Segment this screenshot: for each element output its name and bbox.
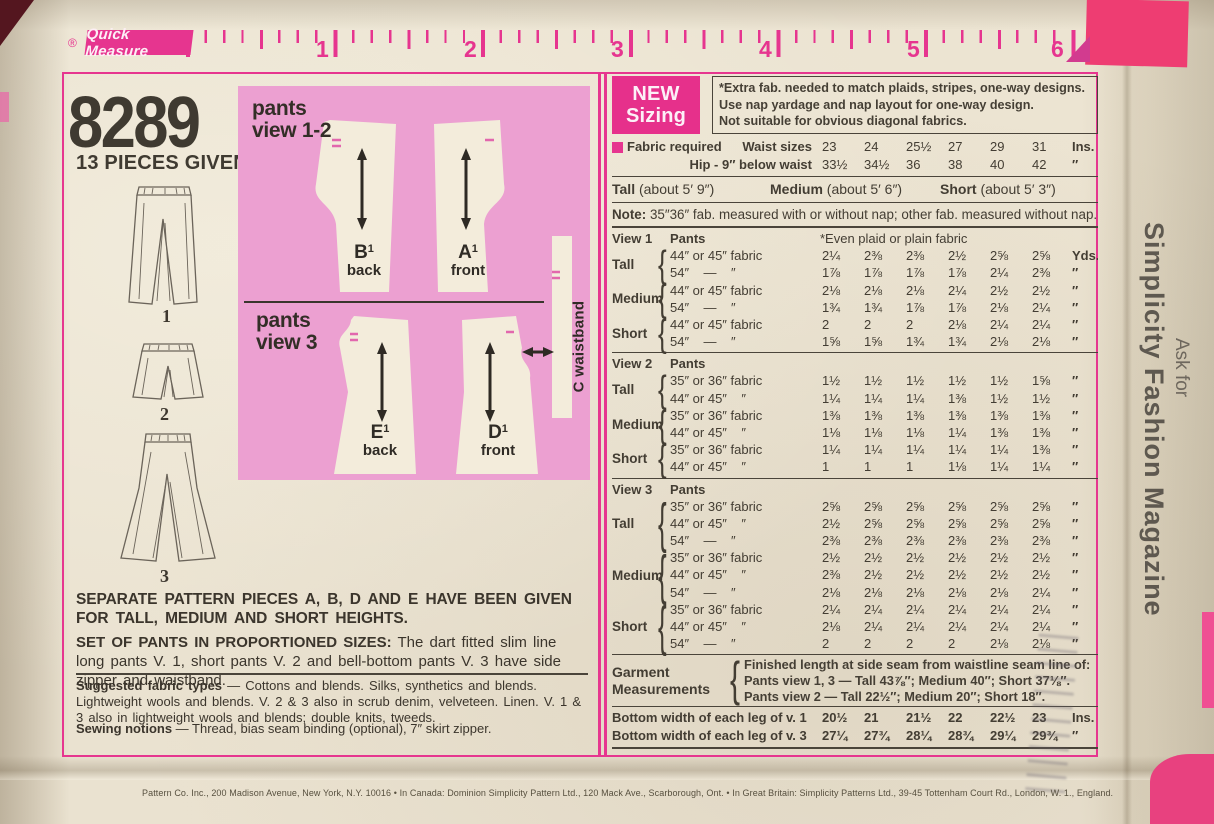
nap-note-row: Note: 35″36″ fab. measured with or witho… (612, 205, 1098, 224)
unit-cell: ″ (1072, 407, 1098, 424)
yardage-cell: 2½ (862, 566, 904, 583)
yardage-row: 44″ or 45″ fabric2¼2⅜2⅜2½2⅝2⅝Yds. (670, 247, 1098, 264)
yardage-cell: 2½ (1030, 549, 1072, 566)
yardage-cell: 1½ (946, 372, 988, 389)
yardage-cell: 2⅝ (862, 498, 904, 515)
notions-lead: Sewing notions (76, 721, 172, 736)
yardage-cell: 1½ (988, 390, 1030, 407)
yardage-cell: 1¼ (820, 441, 862, 458)
yardage-cell: 1¼ (988, 458, 1030, 475)
group-height-label: Medium (612, 417, 658, 432)
yardage-cell: 2⅛ (946, 584, 988, 601)
yardage-cell: 2¼ (904, 618, 946, 635)
yardage-cell: 2⅛ (820, 282, 862, 299)
new-sizing-line1: NEW (632, 83, 679, 105)
yardage-group: Tall 35″ or 36″ fabric1½1½1½1½1½1⅝″44″ o… (612, 372, 1098, 406)
yardage-cell: 1¼ (862, 441, 904, 458)
yardage-cell: 2⅝ (904, 515, 946, 532)
unit-cell: ″ (1072, 566, 1098, 583)
yardage-cell: 2⅝ (988, 498, 1030, 515)
view2-number: 2 (160, 404, 169, 425)
pants-view1-illustration (113, 183, 218, 308)
yardage-cell: 1¾ (862, 299, 904, 316)
yardage-cell: 1¼ (862, 390, 904, 407)
yardage-cell: 1⅛ (862, 424, 904, 441)
garment-measurements-label2: Measurements (612, 681, 730, 698)
group-height-label: Short (612, 326, 658, 341)
bottom-width-row-v3: Bottom width of each leg of v. 3 27¼ 27¾… (612, 727, 1098, 745)
yardage-cell: 2 (904, 635, 946, 652)
waist-size-value: 23 (820, 138, 862, 156)
unit-cell: ″ (1072, 532, 1098, 549)
hip-sizes-row: Hip - 9″ below waist 33½ 34½ 36 38 40 42… (612, 156, 1098, 174)
waist-size-value: 25½ (904, 138, 946, 156)
yardage-cell: 1⅜ (946, 390, 988, 407)
yardage-cell: 2⅛ (1030, 333, 1072, 350)
yardage-cell: 1⅛ (820, 424, 862, 441)
yardage-cell: 2½ (862, 549, 904, 566)
yardage-cell: 1⅞ (904, 299, 946, 316)
fabric-width-cell: 54″ — ″ (670, 333, 820, 350)
unit-cell: ″ (1072, 282, 1098, 299)
pants-view3-illustration (112, 430, 224, 565)
yardage-cell: 1¾ (904, 333, 946, 350)
unit-cell: ″ (1072, 584, 1098, 601)
yardage-cell: 1¾ (820, 299, 862, 316)
corner-tear (0, 0, 34, 46)
brace-icon (658, 560, 670, 591)
view-extra (820, 355, 1098, 372)
unit-cell: ″ (1072, 441, 1098, 458)
yardage-cell: 1⅜ (862, 407, 904, 424)
yardage-cell: 2½ (988, 282, 1030, 299)
height-definition: Tall (about 5′ 9″) (612, 179, 770, 200)
yardage-cell: 2½ (904, 549, 946, 566)
yardage-row: 44″ or 45″ fabric2⅛2⅛2⅛2¼2½2½″ (670, 282, 1098, 299)
yardage-cell: 1½ (904, 372, 946, 389)
yardage-cell: 1⅛ (946, 458, 988, 475)
yardage-cell: 1 (904, 458, 946, 475)
fabrics-lead: Suggested fabric types (76, 678, 222, 693)
pieces-given-label: 13 PIECES GIVEN (76, 152, 248, 175)
pattern-pieces-shapes (238, 86, 590, 480)
unit-cell: ″ (1072, 299, 1098, 316)
fabric-width-cell: 35″ or 36″ fabric (670, 372, 820, 389)
waist-sizes-label: Waist sizes (742, 138, 812, 156)
section-rule (612, 654, 1098, 655)
ruler-number: 3 (611, 36, 624, 63)
height-definition: Short (about 5′ 3″) (940, 179, 1098, 200)
separate-pieces-note: SEPARATE PATTERN PIECES A, B, D AND E HA… (76, 590, 588, 629)
hip-size-value: 38 (946, 156, 988, 174)
notions-rest: — Thread, bias seam binding (optional), … (172, 721, 491, 736)
yardage-cell: 2½ (1030, 566, 1072, 583)
yardage-cell: 1⅜ (904, 407, 946, 424)
yardage-row: 35″ or 36″ fabric1½1½1½1½1½1⅝″ (670, 372, 1098, 389)
yardage-cell: 1⅞ (904, 264, 946, 281)
yardage-cell: 2¼ (946, 282, 988, 299)
yardage-group: Short 35″ or 36″ fabric2¼2¼2¼2¼2¼2¼″44″ … (612, 601, 1098, 653)
right-pink-strip (1202, 612, 1214, 708)
yardage-cell: 2½ (988, 566, 1030, 583)
yardage-cell: 1⅝ (862, 333, 904, 350)
yardage-cell: 2⅜ (946, 532, 988, 549)
yardage-cell: 2⅛ (862, 584, 904, 601)
yardage-cell: 2⅜ (862, 247, 904, 264)
section-rule (612, 352, 1098, 353)
side-magazine-text: Simplicity Fashion Magazine (1138, 222, 1169, 782)
view-garment: Pants (670, 481, 820, 498)
fabric-width-cell: 44″ or 45″ ″ (670, 458, 820, 475)
view2-header: View 2 Pants (612, 355, 1098, 372)
yardage-cell: 2⅝ (820, 498, 862, 515)
view-extra: *Even plaid or plain fabric (820, 230, 1098, 247)
bottom-width-label: Bottom width of each leg of v. 1 (612, 709, 807, 727)
yardage-cell: 2⅝ (1030, 498, 1072, 515)
fabric-width-cell: 54″ — ″ (670, 532, 820, 549)
view-extra (820, 481, 1098, 498)
fabric-width-cell: 35″ or 36″ fabric (670, 407, 820, 424)
side-ask-for-text: Ask for (1170, 338, 1192, 568)
height-name: Medium (770, 181, 823, 197)
yardage-row: 35″ or 36″ fabric2½2½2½2½2½2½″ (670, 549, 1098, 566)
bottom-width-value: 28¼ (904, 727, 946, 745)
yardage-cell: 2⅜ (820, 532, 862, 549)
section-rule (612, 478, 1098, 479)
yardage-group: Medium 35″ or 36″ fabric1⅜1⅜1⅜1⅜1⅜1⅜″44″… (612, 407, 1098, 441)
piece-label-e: E1 back (344, 422, 416, 459)
group-height-label: Tall (612, 516, 658, 531)
yardage-row: 44″ or 45″ ″1111⅛1¼1¼″ (670, 458, 1098, 475)
view1-header: View 1 Pants *Even plaid or plain fabric (612, 230, 1098, 247)
text-divider (76, 673, 588, 675)
quick-measure-label: Quick Measure (85, 26, 193, 60)
new-sizing-line2: Sizing (626, 105, 686, 127)
registered-trademark-icon: ® (68, 36, 77, 50)
yardage-cell: 2½ (946, 566, 988, 583)
bottom-width-value: 22½ (988, 709, 1030, 727)
yardage-group: Short 35″ or 36″ fabric1¼1¼1¼1¼1¼1⅜″44″ … (612, 441, 1098, 475)
yardage-cell: 1⅜ (988, 407, 1030, 424)
bottom-width-value: 22 (946, 709, 988, 727)
flap-pink-block (1085, 0, 1189, 67)
view3-diagram-label: pants view 3 (256, 310, 317, 353)
group-height-label: Tall (612, 257, 658, 272)
yardage-cell: 2 (862, 635, 904, 652)
yardage-cell: 2¼ (1030, 601, 1072, 618)
ruler-number: 2 (464, 36, 477, 63)
view3-number: 3 (160, 566, 169, 587)
group-height-label: Medium (612, 568, 658, 583)
yardage-panel: NEW Sizing *Extra fab. needed to match p… (608, 74, 1098, 755)
extra-fabric-note-line: Not suitable for obvious diagonal fabric… (719, 113, 1091, 130)
yardage-cell: 2⅛ (988, 299, 1030, 316)
yardage-row: 54″ — ″1⅞1⅞1⅞1⅞2¼2⅜″ (670, 264, 1098, 281)
bottom-width-value: 21 (862, 709, 904, 727)
fabric-width-cell: 44″ or 45″ ″ (670, 618, 820, 635)
yardage-cell: 2½ (904, 566, 946, 583)
yardage-cell: 2½ (946, 247, 988, 264)
height-name: Tall (612, 181, 635, 197)
fabric-width-cell: 35″ or 36″ fabric (670, 601, 820, 618)
piece-sup: 1 (383, 423, 389, 435)
yardage-cell: 1⅜ (1030, 424, 1072, 441)
yardage-cell: 2¼ (1030, 316, 1072, 333)
yardage-cell: 2⅛ (820, 618, 862, 635)
nap-note-lead: Note: (612, 207, 646, 222)
waist-size-value: 29 (988, 138, 1030, 156)
yardage-cell: 2⅛ (988, 635, 1030, 652)
hip-size-value: 34½ (862, 156, 904, 174)
yardage-cell: 2⅛ (988, 333, 1030, 350)
ruler-number: 5 (907, 36, 920, 63)
height-desc: (about 5′ 6″) (823, 181, 902, 197)
ruler-number: 1 (316, 36, 329, 63)
yardage-cell: 2⅝ (1030, 515, 1072, 532)
garment-measurements-label1: Garment (612, 664, 730, 681)
group-height-label: Medium (612, 291, 658, 306)
yardage-cell: 1 (820, 458, 862, 475)
sewing-notions-note: Sewing notions — Thread, bias seam bindi… (76, 721, 588, 736)
yardage-cell: 2⅝ (862, 515, 904, 532)
section-rule (612, 202, 1098, 203)
unit-cell: ″ (1072, 390, 1098, 407)
section-rule-thick (612, 226, 1098, 228)
yardage-cell: 2⅝ (1030, 247, 1072, 264)
yardage-row: 54″ — ″1¾1¾1⅞1⅞2⅛2¼″ (670, 299, 1098, 316)
yardage-cell: 1⅝ (820, 333, 862, 350)
waist-size-value: 27 (946, 138, 988, 156)
hip-size-value: 42 (1030, 156, 1072, 174)
piece-part: front (432, 262, 504, 279)
view1-number: 1 (162, 306, 171, 327)
piece-sup: 1 (472, 243, 478, 255)
yardage-cell: 2⅜ (862, 532, 904, 549)
group-height-label: Short (612, 451, 658, 466)
piece-letter: B (354, 242, 368, 263)
extra-fabric-note: *Extra fab. needed to match plaids, stri… (712, 76, 1098, 134)
pants-view2-illustration (126, 340, 210, 404)
yardage-cell: 1¼ (820, 390, 862, 407)
yardage-cell: 1⅜ (1030, 441, 1072, 458)
piece-label-b: B1 back (328, 242, 400, 279)
yardage-row: 54″ — ″2⅜2⅜2⅜2⅜2⅜2⅜″ (670, 532, 1098, 549)
footer-copyright: Pattern Co. Inc., 200 Madison Avenue, Ne… (142, 788, 1122, 798)
yardage-cell: 2¼ (946, 601, 988, 618)
yardage-cell: 2⅝ (946, 498, 988, 515)
yardage-cell: 2⅜ (904, 247, 946, 264)
height-desc: (about 5′ 9″) (635, 181, 714, 197)
yardage-cell: 1¼ (904, 390, 946, 407)
piece-letter: D (488, 422, 502, 443)
heights-row: Tall (about 5′ 9″)Medium (about 5′ 6″)Sh… (612, 179, 1098, 200)
yardage-row: 44″ or 45″ fabric2222⅛2¼2¼″ (670, 316, 1098, 333)
yardage-cell: 2⅝ (904, 498, 946, 515)
yardage-group: Tall 35″ or 36″ fabric2⅝2⅝2⅝2⅝2⅝2⅝″44″ o… (612, 498, 1098, 550)
yardage-cell: 2½ (1030, 282, 1072, 299)
extra-fabric-note-line: Use nap yardage and nap layout for one-w… (719, 97, 1091, 114)
waist-size-value: 31 (1030, 138, 1072, 156)
unit-cell: ″ (1072, 316, 1098, 333)
paper-crease-right (1122, 0, 1132, 824)
yardage-cell: 1½ (1030, 390, 1072, 407)
waist-sizes-row: Fabric required Waist sizes 23 24 25½ 27… (612, 138, 1098, 156)
yardage-cell: 1⅞ (820, 264, 862, 281)
paper-fold-left (0, 0, 70, 824)
fabric-width-cell: 44″ or 45″ fabric (670, 247, 820, 264)
yardage-row: 44″ or 45″ ″1¼1¼1¼1⅜1½1½″ (670, 390, 1098, 407)
yardage-cell: 1 (862, 458, 904, 475)
pattern-pieces-diagram: pants view 1-2 pants view 3 B1 back A1 f… (238, 86, 590, 480)
yardage-row: 44″ or 45″ ″1⅛1⅛1⅛1¼1⅜1⅜″ (670, 424, 1098, 441)
fabric-width-cell: 35″ or 36″ fabric (670, 498, 820, 515)
yardage-row: 35″ or 36″ fabric1⅜1⅜1⅜1⅜1⅜1⅜″ (670, 407, 1098, 424)
fabric-width-cell: 44″ or 45″ fabric (670, 316, 820, 333)
fabric-width-cell: 35″ or 36″ fabric (670, 549, 820, 566)
waistband-label: C waistband (571, 282, 588, 412)
yardage-cell: 2¼ (988, 601, 1030, 618)
yardage-cell: 2⅛ (946, 316, 988, 333)
yardage-cell: 2⅜ (988, 532, 1030, 549)
hip-size-value: 33½ (820, 156, 862, 174)
unit-cell: ″ (1072, 601, 1098, 618)
yardage-cell: 1⅞ (946, 299, 988, 316)
piece-part: front (462, 442, 534, 459)
fabric-required-label: Fabric required (627, 138, 722, 156)
yardage-cell: 2¼ (988, 316, 1030, 333)
piece-label-d: D1 front (462, 422, 534, 459)
fabric-width-cell: 44″ or 45″ ″ (670, 390, 820, 407)
view3-header: View 3 Pants (612, 481, 1098, 498)
panel-divider (598, 72, 601, 757)
fabric-width-cell: 44″ or 45″ ″ (670, 424, 820, 441)
section-rule (612, 176, 1098, 177)
yardage-group: Medium 35″ or 36″ fabric2½2½2½2½2½2½″44″… (612, 549, 1098, 601)
group-height-label: Short (612, 619, 658, 634)
bottom-width-label: Bottom width of each leg of v. 3 (612, 727, 807, 745)
fabric-width-cell: 35″ or 36″ fabric (670, 441, 820, 458)
piece-letter: E (371, 422, 384, 443)
pink-square-icon (612, 142, 623, 153)
bottom-width-value: 20½ (820, 709, 862, 727)
yardage-cell: 1½ (820, 372, 862, 389)
yardage-row: 44″ or 45″ ″2⅛2¼2¼2¼2¼2¼″ (670, 618, 1098, 635)
yardage-cell: 2⅛ (988, 584, 1030, 601)
yardage-cell: 2⅜ (1030, 264, 1072, 281)
hip-size-value: 36 (904, 156, 946, 174)
section-rule (612, 706, 1098, 707)
view-garment: Pants (670, 355, 820, 372)
garment-measurements: Garment Measurements Finished length at … (612, 657, 1098, 704)
pattern-envelope-back: ® Quick Measure 123456 8289 13 PIECES GI… (0, 0, 1214, 824)
yardage-row: 35″ or 36″ fabric1¼1¼1¼1¼1¼1⅜″ (670, 441, 1098, 458)
yardage-cell: 1¼ (904, 441, 946, 458)
yardage-cell: 2⅝ (988, 247, 1030, 264)
piece-sup: 1 (502, 423, 508, 435)
brace-icon (658, 409, 670, 440)
yardage-group: Short 44″ or 45″ fabric2222⅛2¼2¼″54″ — ″… (612, 316, 1098, 350)
yardage-cell: 1½ (988, 372, 1030, 389)
edge-pink-sliver (0, 92, 9, 122)
brace-icon (658, 508, 670, 539)
yardage-cell: 2¼ (862, 601, 904, 618)
piece-part: back (328, 262, 400, 279)
yardage-cell: 1¾ (946, 333, 988, 350)
yardage-cell: 2¼ (820, 601, 862, 618)
view-garment: Pants (670, 230, 820, 247)
yardage-cell: 2⅛ (820, 584, 862, 601)
yardage-cell: 2½ (946, 549, 988, 566)
yardage-cell: 2¼ (1030, 299, 1072, 316)
quick-measure-badge: Quick Measure (84, 30, 193, 55)
brace-icon (658, 374, 670, 405)
yardage-cell: 2⅝ (946, 515, 988, 532)
yardage-cell: 2⅝ (988, 515, 1030, 532)
brace-icon (658, 283, 670, 314)
yardage-cell: 1¼ (1030, 458, 1072, 475)
bottom-width-value: 28¾ (946, 727, 988, 745)
yardage-cell: 1⅜ (946, 407, 988, 424)
brace-icon (658, 318, 670, 349)
yardage-cell: 2¼ (1030, 584, 1072, 601)
unit-cell: ″ (1072, 424, 1098, 441)
yardage-cell: 2¼ (946, 618, 988, 635)
fabric-width-cell: 44″ or 45″ ″ (670, 566, 820, 583)
panel-divider (604, 72, 607, 757)
bottom-width-unit: ″ (1072, 727, 1098, 745)
bottom-width-value: 27¼ (820, 727, 862, 745)
bottom-width-row-v1: Bottom width of each leg of v. 1 20½ 21 … (612, 709, 1098, 727)
yardage-cell: 2¼ (988, 264, 1030, 281)
yardage-cell: 1⅜ (1030, 407, 1072, 424)
yardage-cell: 2 (820, 635, 862, 652)
yardage-cell: 2 (904, 316, 946, 333)
unit-cell: ″ (1072, 333, 1098, 350)
yardage-cell: 1½ (862, 372, 904, 389)
yardage-cell: 1⅝ (1030, 372, 1072, 389)
yardage-cell: 2⅛ (862, 282, 904, 299)
yardage-row: 35″ or 36″ fabric2⅝2⅝2⅝2⅝2⅝2⅝″ (670, 498, 1098, 515)
yardage-row: 54″ — ″22222⅛2⅛″ (670, 635, 1098, 652)
hip-unit: ″ (1072, 156, 1098, 174)
fabric-width-cell: 44″ or 45″ ″ (670, 515, 820, 532)
extra-fabric-note-line: *Extra fab. needed to match plaids, stri… (719, 80, 1091, 97)
fabric-width-cell: 54″ — ″ (670, 264, 820, 281)
yardage-row: 44″ or 45″ ″2⅜2½2½2½2½2½″ (670, 566, 1098, 583)
yardage-cell: 2¼ (862, 618, 904, 635)
yardage-cell: 1⅛ (904, 424, 946, 441)
view12-diagram-label: pants view 1-2 (252, 98, 331, 141)
yardage-cell: 2½ (820, 515, 862, 532)
nap-note-rest: 35″36″ fab. measured with or without nap… (646, 207, 1097, 222)
yardage-cell: 1¼ (988, 441, 1030, 458)
set-note-lead: SET OF PANTS IN PROPORTIONED SIZES: (76, 634, 392, 651)
fabric-width-cell: 54″ — ″ (670, 299, 820, 316)
piece-label-a: A1 front (432, 242, 504, 279)
yardage-row: 35″ or 36″ fabric2¼2¼2¼2¼2¼2¼″ (670, 601, 1098, 618)
unit-cell: ″ (1072, 515, 1098, 532)
yardage-cell: 2⅜ (820, 566, 862, 583)
unit-cell: ″ (1072, 264, 1098, 281)
ruler-number: 6 (1051, 36, 1064, 63)
yardage-cell: 2⅜ (904, 532, 946, 549)
new-sizing-badge: NEW Sizing (612, 76, 700, 134)
yardage-cell: 2⅛ (904, 282, 946, 299)
fabric-width-cell: 54″ — ″ (670, 635, 820, 652)
hip-size-value: 40 (988, 156, 1030, 174)
yardage-cell: 2½ (820, 549, 862, 566)
grainline-arrow-icon (522, 347, 554, 357)
